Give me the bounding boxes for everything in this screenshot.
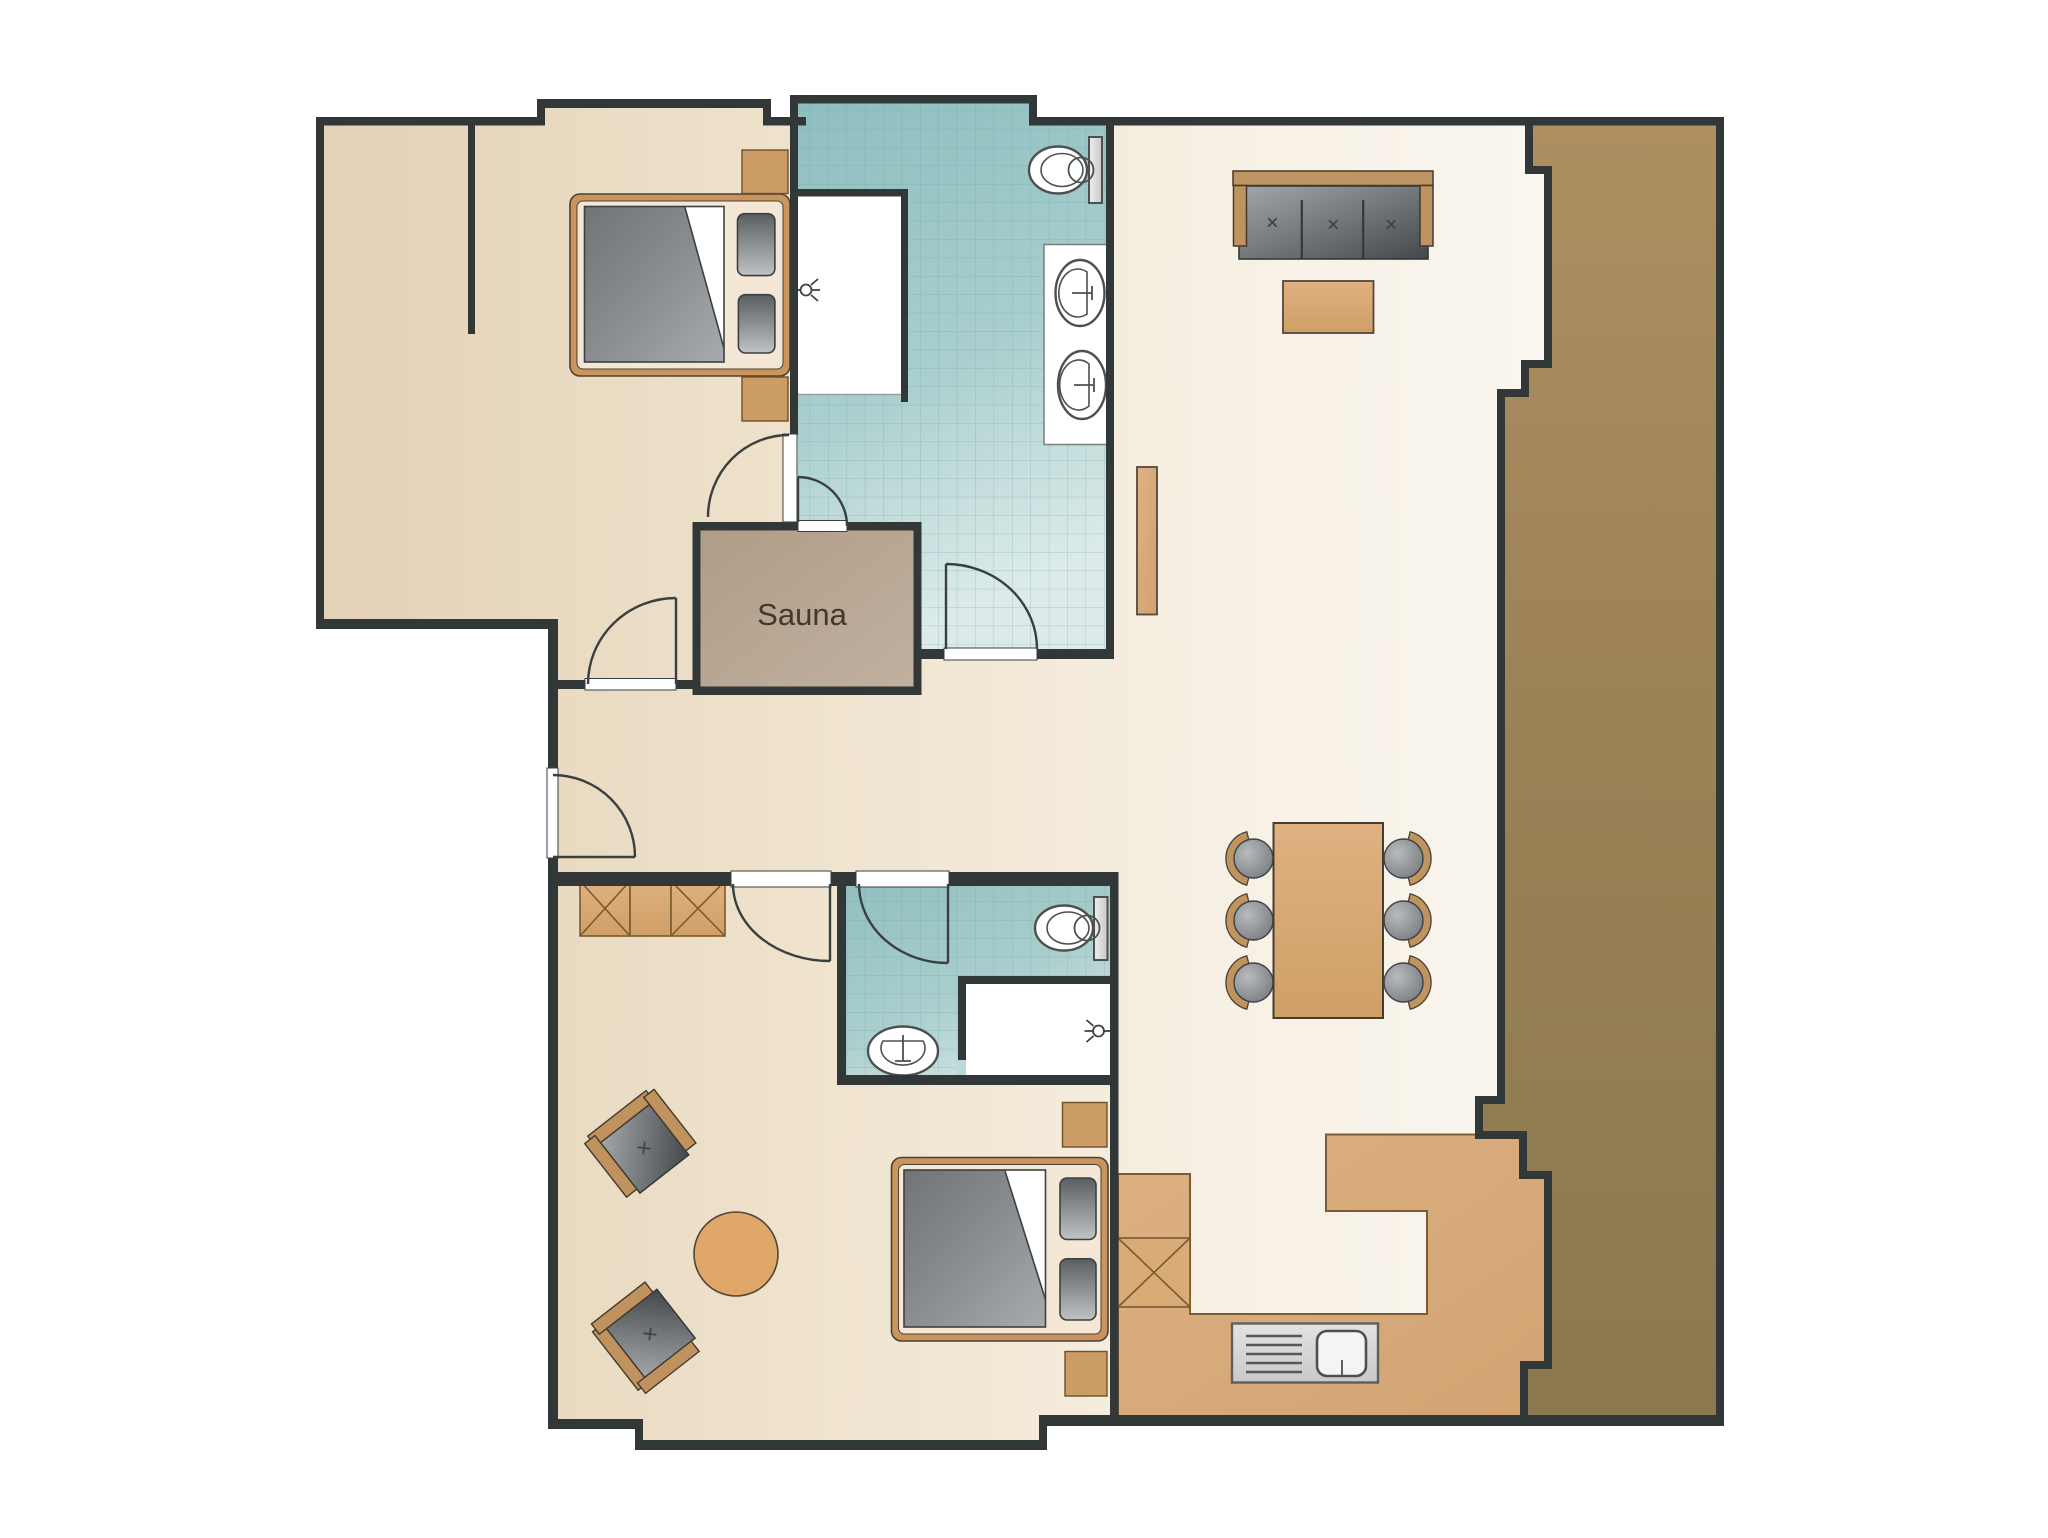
svg-text:Sauna: Sauna [757,597,847,632]
